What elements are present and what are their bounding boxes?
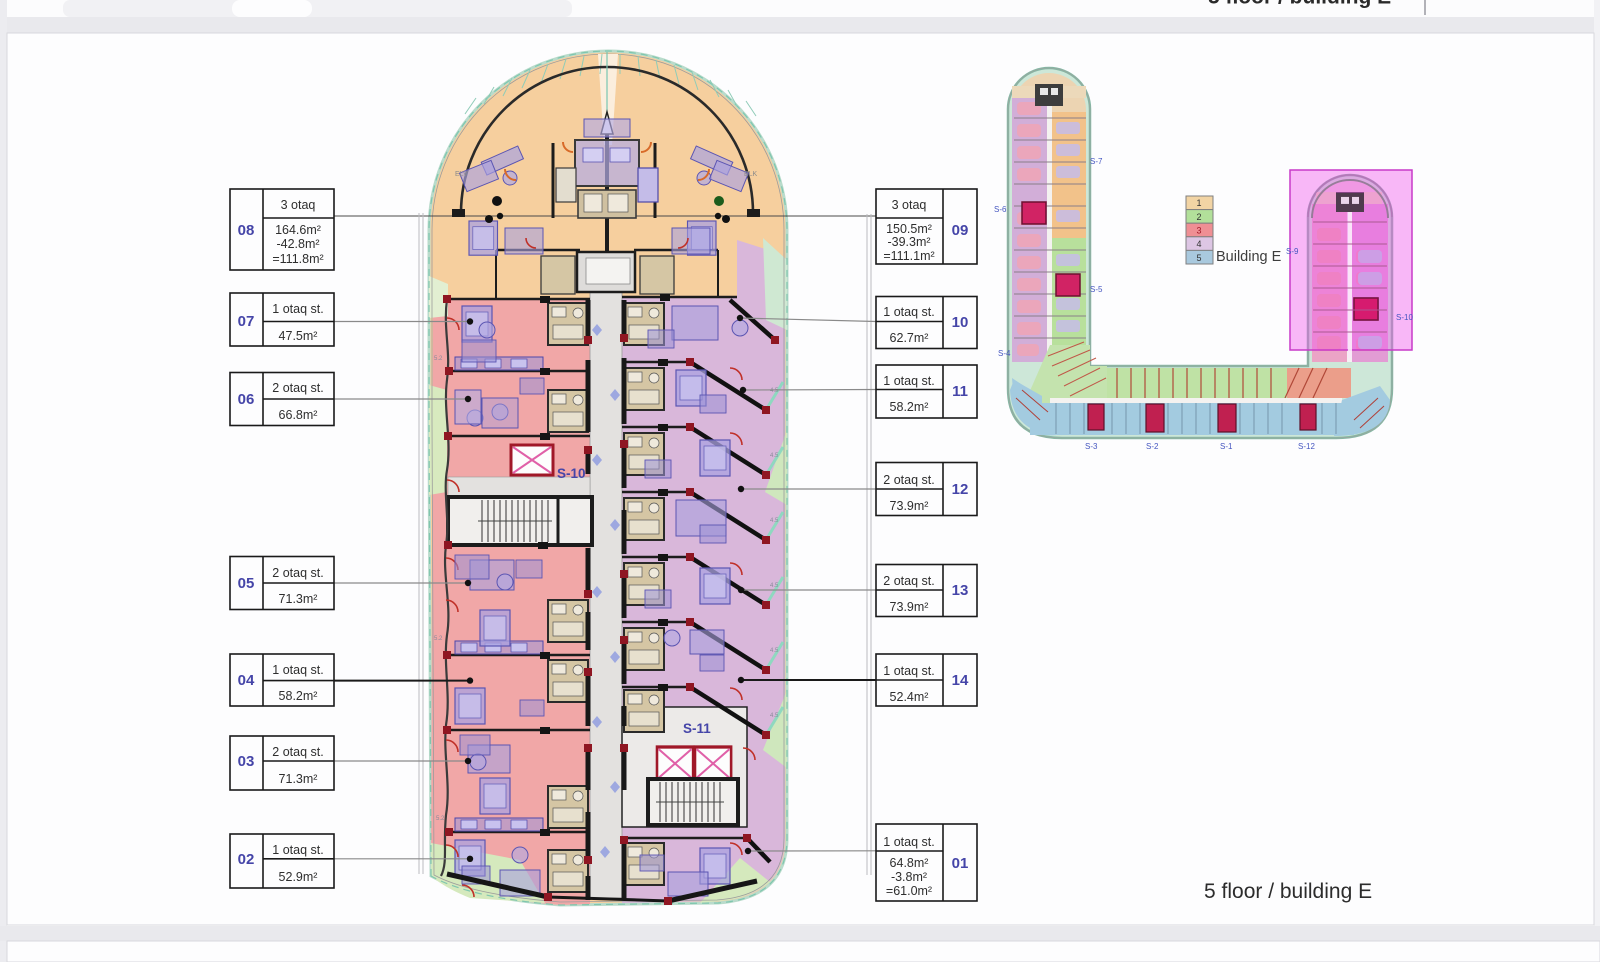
svg-text:73.9m²: 73.9m² bbox=[890, 600, 929, 614]
svg-text:52.4m²: 52.4m² bbox=[890, 690, 929, 704]
svg-text:13: 13 bbox=[952, 582, 969, 599]
svg-text:4.5: 4.5 bbox=[770, 583, 779, 589]
svg-text:1 otaq st.: 1 otaq st. bbox=[272, 663, 323, 677]
svg-text:5: 5 bbox=[1196, 253, 1201, 263]
svg-text:150.5m²: 150.5m² bbox=[886, 222, 932, 236]
svg-text:S-11: S-11 bbox=[683, 721, 711, 736]
svg-text:1 otaq st.: 1 otaq st. bbox=[883, 664, 934, 678]
svg-text:58.2m²: 58.2m² bbox=[279, 689, 318, 703]
svg-text:71.3m²: 71.3m² bbox=[279, 772, 318, 786]
svg-text:1 otaq st.: 1 otaq st. bbox=[883, 374, 934, 388]
svg-text:5 floor / building E: 5 floor / building E bbox=[1208, 0, 1391, 9]
svg-text:164.6m²: 164.6m² bbox=[275, 223, 321, 237]
svg-text:08: 08 bbox=[238, 222, 255, 239]
svg-text:64.8m²: 64.8m² bbox=[890, 856, 929, 870]
svg-text:06: 06 bbox=[238, 391, 255, 408]
svg-text:62.7m²: 62.7m² bbox=[890, 331, 929, 345]
svg-text:-3.8m²: -3.8m² bbox=[891, 870, 927, 884]
svg-text:3: 3 bbox=[1196, 226, 1201, 236]
svg-text:66.8m²: 66.8m² bbox=[279, 408, 318, 422]
svg-text:4.5: 4.5 bbox=[770, 713, 779, 719]
svg-text:07: 07 bbox=[238, 313, 255, 330]
svg-text:4.5: 4.5 bbox=[770, 388, 779, 394]
svg-text:4: 4 bbox=[1196, 239, 1201, 249]
svg-text:=61.0m²: =61.0m² bbox=[886, 884, 932, 898]
svg-text:05: 05 bbox=[238, 575, 255, 592]
svg-text:S-7: S-7 bbox=[1090, 157, 1103, 166]
svg-text:2 otaq st.: 2 otaq st. bbox=[272, 745, 323, 759]
svg-text:S-12: S-12 bbox=[1298, 442, 1315, 451]
svg-text:Building E: Building E bbox=[1216, 249, 1282, 265]
svg-text:58.2m²: 58.2m² bbox=[890, 400, 929, 414]
svg-text:11: 11 bbox=[952, 383, 968, 400]
svg-text:02: 02 bbox=[238, 851, 255, 868]
svg-text:3 otaq: 3 otaq bbox=[892, 198, 927, 212]
svg-text:04: 04 bbox=[238, 672, 255, 689]
svg-text:1 otaq st.: 1 otaq st. bbox=[883, 835, 934, 849]
svg-text:09: 09 bbox=[952, 222, 969, 239]
svg-text:3 otaq: 3 otaq bbox=[281, 198, 316, 212]
svg-text:S-10: S-10 bbox=[1396, 313, 1413, 322]
svg-text:52.9m²: 52.9m² bbox=[279, 870, 318, 884]
svg-text:2 otaq st.: 2 otaq st. bbox=[883, 473, 934, 487]
svg-text:10: 10 bbox=[952, 314, 969, 331]
svg-text:S-10: S-10 bbox=[557, 466, 586, 481]
svg-text:-42.8m²: -42.8m² bbox=[276, 237, 319, 251]
svg-text:5.2: 5.2 bbox=[434, 356, 443, 362]
svg-text:S-5: S-5 bbox=[1090, 285, 1103, 294]
svg-text:=111.1m²: =111.1m² bbox=[883, 249, 934, 263]
svg-text:1 otaq st.: 1 otaq st. bbox=[272, 302, 323, 316]
svg-text:5.2: 5.2 bbox=[434, 636, 443, 642]
svg-text:4.5: 4.5 bbox=[770, 518, 779, 524]
svg-text:2 otaq st.: 2 otaq st. bbox=[272, 381, 323, 395]
svg-text:1 otaq st.: 1 otaq st. bbox=[883, 305, 934, 319]
svg-text:5.2: 5.2 bbox=[436, 816, 445, 822]
svg-text:BLK: BLK bbox=[744, 171, 758, 178]
svg-text:S-1: S-1 bbox=[1220, 442, 1233, 451]
svg-text:01: 01 bbox=[952, 855, 969, 872]
svg-text:03: 03 bbox=[238, 753, 255, 770]
svg-text:2 otaq st.: 2 otaq st. bbox=[272, 566, 323, 580]
svg-text:S-2: S-2 bbox=[1146, 442, 1159, 451]
svg-text:1: 1 bbox=[1196, 198, 1201, 208]
svg-text:1 otaq st.: 1 otaq st. bbox=[272, 843, 323, 857]
svg-text:71.3m²: 71.3m² bbox=[279, 592, 318, 606]
svg-text:-39.3m²: -39.3m² bbox=[887, 235, 930, 249]
svg-text:S-9: S-9 bbox=[1286, 247, 1299, 256]
svg-text:4.5: 4.5 bbox=[770, 453, 779, 459]
svg-text:S-4: S-4 bbox=[998, 349, 1011, 358]
svg-text:S-3: S-3 bbox=[1085, 442, 1098, 451]
svg-text:2 otaq st.: 2 otaq st. bbox=[883, 574, 934, 588]
svg-text:5 floor / building E: 5 floor / building E bbox=[1204, 880, 1372, 903]
svg-text:12: 12 bbox=[952, 481, 969, 498]
svg-text:14: 14 bbox=[952, 672, 969, 689]
svg-text:S-6: S-6 bbox=[994, 205, 1007, 214]
svg-text:73.9m²: 73.9m² bbox=[890, 499, 929, 513]
svg-text:ELV: ELV bbox=[455, 171, 468, 178]
svg-text:4.5: 4.5 bbox=[770, 648, 779, 654]
svg-text:47.5m²: 47.5m² bbox=[279, 329, 318, 343]
svg-text:=111.8m²: =111.8m² bbox=[272, 252, 323, 266]
svg-text:2: 2 bbox=[1196, 212, 1201, 222]
